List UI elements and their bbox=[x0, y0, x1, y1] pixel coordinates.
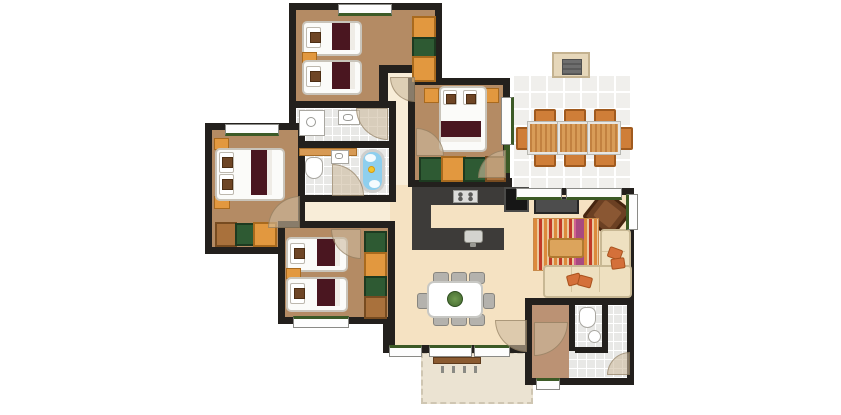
nightstand bbox=[424, 88, 439, 103]
toilet bbox=[305, 157, 323, 179]
blanket-fold bbox=[335, 279, 340, 306]
single-bed bbox=[302, 60, 362, 95]
kitchen-sink-faucet bbox=[470, 243, 476, 247]
bed-cushion bbox=[294, 288, 305, 299]
window bbox=[474, 345, 510, 357]
basin-bowl bbox=[335, 153, 343, 159]
window bbox=[429, 345, 472, 357]
kitchen-sink bbox=[464, 230, 483, 243]
shower-drain bbox=[306, 117, 316, 127]
bed-cushion bbox=[310, 32, 321, 43]
bench-leg bbox=[463, 366, 466, 373]
window bbox=[501, 97, 514, 145]
rubber-duck-icon bbox=[368, 166, 375, 173]
window bbox=[536, 378, 560, 390]
bed-cushion bbox=[222, 157, 233, 168]
single-bed bbox=[302, 21, 362, 56]
outdoor-dining-table bbox=[528, 122, 560, 154]
bath-foam bbox=[369, 180, 380, 188]
outdoor-chair bbox=[618, 127, 633, 150]
blanket-fold bbox=[350, 62, 355, 89]
wardrobe bbox=[364, 252, 387, 278]
blanket-fold bbox=[267, 150, 272, 195]
blanket bbox=[251, 150, 267, 195]
wall-wc-left bbox=[569, 305, 575, 351]
toilet bbox=[579, 307, 596, 328]
blanket bbox=[332, 62, 350, 89]
bathtub bbox=[360, 149, 385, 193]
wardrobe bbox=[364, 296, 387, 319]
wall-wc-right bbox=[602, 305, 608, 353]
blanket-fold bbox=[441, 137, 481, 142]
kitchen-counter-left bbox=[412, 205, 431, 230]
dining-chair bbox=[483, 293, 495, 309]
window bbox=[626, 194, 638, 230]
table-plant bbox=[447, 291, 463, 307]
bed-cushion bbox=[310, 71, 321, 82]
single-bed bbox=[286, 277, 348, 312]
bench-leg bbox=[441, 366, 444, 373]
outdoor-dining-table bbox=[558, 122, 590, 154]
double-bed bbox=[439, 86, 487, 152]
window bbox=[293, 316, 349, 328]
blanket-fold bbox=[350, 23, 355, 50]
wardrobe bbox=[412, 37, 436, 58]
basin-bowl bbox=[343, 114, 353, 121]
blanket bbox=[317, 239, 335, 266]
stove bbox=[453, 190, 478, 203]
window bbox=[225, 124, 279, 136]
wall-nook-horizontal bbox=[386, 65, 414, 73]
wall-wc-bottom bbox=[575, 347, 602, 353]
wardrobe bbox=[412, 56, 436, 82]
bench bbox=[433, 357, 481, 364]
outdoor-dining-table bbox=[588, 122, 620, 154]
sofa-cushion bbox=[610, 257, 625, 270]
blanket bbox=[332, 23, 350, 50]
double-bed bbox=[215, 148, 285, 201]
bed-cushion bbox=[294, 248, 305, 259]
sofa-seam bbox=[599, 267, 600, 292]
floor-plan bbox=[0, 0, 841, 415]
wardrobe bbox=[235, 223, 255, 246]
washbasin-round bbox=[588, 330, 601, 343]
kitchen-counter-bottom bbox=[412, 228, 504, 250]
blanket bbox=[441, 121, 481, 137]
barbecue bbox=[552, 52, 590, 78]
bench-leg bbox=[474, 366, 477, 373]
shower bbox=[299, 110, 325, 136]
bed-cushion bbox=[222, 179, 233, 190]
window bbox=[389, 345, 422, 357]
bath-foam bbox=[365, 154, 376, 162]
bed-cushion bbox=[466, 94, 476, 104]
wall-living-left-lower bbox=[383, 319, 395, 348]
window bbox=[566, 188, 622, 200]
blanket bbox=[317, 279, 335, 306]
window bbox=[516, 188, 562, 200]
bed-cushion bbox=[446, 94, 456, 104]
window bbox=[338, 4, 392, 16]
wardrobe bbox=[215, 222, 237, 247]
coffee-table bbox=[548, 238, 584, 258]
washbasin bbox=[331, 150, 349, 164]
bench-leg bbox=[452, 366, 455, 373]
barbecue-grate bbox=[562, 59, 582, 75]
